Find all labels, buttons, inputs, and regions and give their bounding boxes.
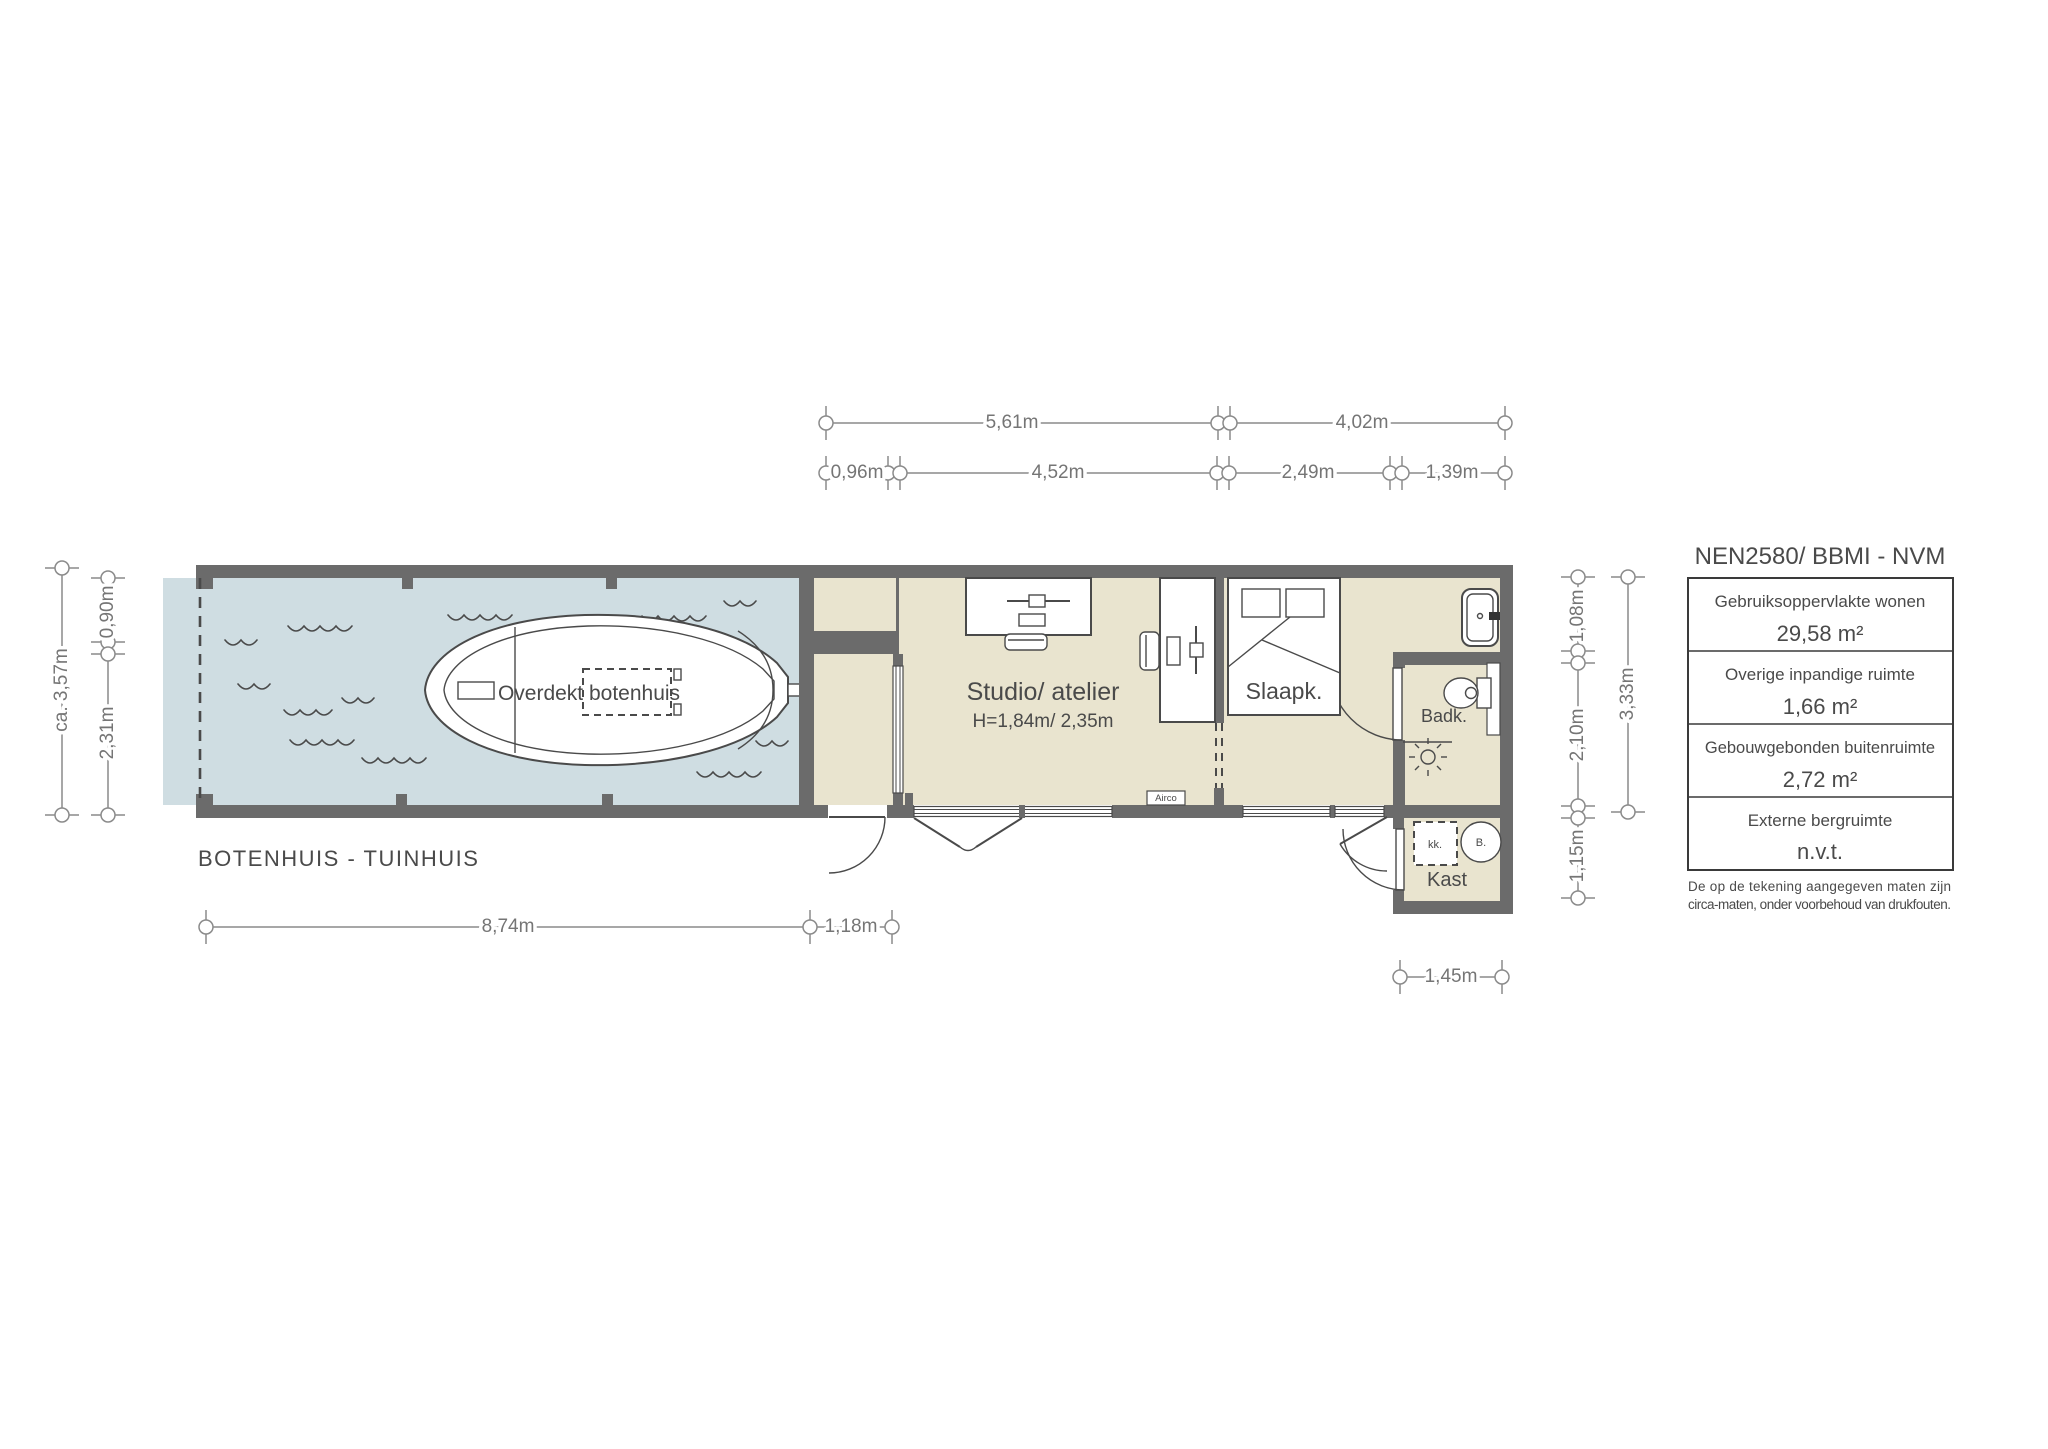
dim-circle [101, 808, 115, 822]
dim-circle [1223, 416, 1237, 430]
french-door-arc [960, 847, 976, 851]
boat-engine-box [458, 682, 494, 699]
legend-row-label: Gebouwgebonden buitenruimte [1705, 739, 1935, 757]
bedroom-label: Slaapk. [1246, 678, 1323, 704]
bedroom-window-2 [1335, 807, 1384, 817]
dim-circle [1621, 805, 1635, 819]
legend-title: NEN2580/ BBMI - NVM [1695, 543, 1946, 570]
wall-closet-right [1500, 818, 1513, 914]
dim-circle [101, 571, 115, 585]
monitor-2-stand [1190, 643, 1203, 657]
dim-circle [199, 920, 213, 934]
pillow [1286, 589, 1324, 617]
dim-label: 4,52m [1032, 462, 1085, 483]
dim-circle [1571, 570, 1585, 584]
dim-label: 5,61m [986, 412, 1039, 433]
dim-circle [1571, 811, 1585, 825]
wall-bathroom-left [1393, 740, 1405, 805]
keyboard-2 [1167, 637, 1180, 665]
legend-row-value: 1,66 m² [1783, 694, 1858, 719]
wall-bathroom-top [1393, 652, 1500, 665]
dim-label: 1,08m [1567, 590, 1588, 643]
dim-label: 0,90m [97, 586, 118, 639]
dim-label: 1,15m [1567, 830, 1588, 883]
bathroom-label: Badk. [1421, 706, 1467, 726]
wall-closet-bottom [1393, 901, 1513, 914]
legend-disclaimer-line1: De op de tekening aangegeven maten zijn [1688, 879, 1951, 894]
chair [1005, 634, 1047, 650]
studio-label: Studio/ atelier [967, 678, 1120, 706]
wall-top [196, 565, 1513, 578]
dim-label: 1,18m [825, 916, 878, 937]
legend: NEN2580/ BBMI - NVM Gebruiksoppervlakte … [1688, 543, 1953, 912]
wall-bottom-airco [1112, 805, 1243, 818]
faucet [1489, 612, 1500, 620]
legend-row-label: Gebruiksoppervlakte wonen [1715, 592, 1926, 611]
floorplan-canvas: 5,61m 4,02m 0,96m 4,52m 2,49m 1,39m ca. … [0, 0, 2048, 1449]
bedroom-window [1243, 807, 1330, 817]
airco-label: Airco [1155, 793, 1177, 804]
wall-vestibule-top [814, 631, 899, 654]
wall-right [1500, 565, 1513, 818]
toilet-bowl [1444, 678, 1478, 708]
pillar [396, 794, 407, 805]
plan-title: BOTENHUIS - TUINHUIS [198, 846, 479, 871]
studio-window-band [914, 807, 1112, 817]
dim-label: 1,39m [1426, 462, 1479, 483]
dim-label: 2,31m [97, 707, 118, 760]
closet-door-leaf [1396, 829, 1404, 890]
bedroom-door-arc [1340, 844, 1387, 871]
boat-hatch-hinge-bottom [674, 704, 681, 715]
boat-label: Overdekt botenhuis [498, 682, 680, 705]
wall-bottom-boathouse [196, 805, 810, 818]
dim-circle [1393, 970, 1407, 984]
dim-label: ca. 3,57m [51, 648, 72, 731]
dim-circle [819, 416, 833, 430]
fridge-label: kk. [1428, 839, 1442, 851]
dim-label: 2,49m [1282, 462, 1335, 483]
dim-circle [101, 647, 115, 661]
glass-partition [893, 666, 903, 793]
pillar [402, 578, 413, 589]
dim-circle [885, 920, 899, 934]
dim-label: 3,33m [1617, 668, 1638, 721]
bedroom-door-leaf [1340, 817, 1387, 844]
keyboard [1019, 614, 1045, 626]
bathroom-door-leaf [1393, 668, 1402, 740]
legend-row-value: n.v.t. [1797, 839, 1843, 864]
vestibule-door-arc [829, 817, 885, 873]
dim-circle [55, 808, 69, 822]
wall-bathroom-bottom [1400, 805, 1513, 818]
dim-circle [1222, 466, 1236, 480]
legend-row-value: 2,72 m² [1783, 767, 1858, 792]
wall-small-room [896, 578, 899, 631]
window-mullion [1330, 805, 1335, 818]
chair-2 [1140, 632, 1159, 670]
dim-circle [1571, 891, 1585, 905]
dim-circle [893, 466, 907, 480]
monitor-stand [1029, 595, 1045, 607]
legend-disclaimer-line2: circa-maten, onder voorbehoud van drukfo… [1688, 897, 1951, 912]
dim-label: 4,02m [1336, 412, 1389, 433]
dim-circle [803, 920, 817, 934]
boiler-label: B. [1476, 837, 1486, 849]
dim-label: 0,96m [831, 462, 884, 483]
french-door-leaf-left [914, 818, 960, 847]
legend-row-value: 29,58 m² [1777, 621, 1864, 646]
dim-circle [1498, 466, 1512, 480]
dim-circle [1495, 970, 1509, 984]
pillow [1242, 589, 1280, 617]
floorplan-svg: 5,61m 4,02m 0,96m 4,52m 2,49m 1,39m ca. … [0, 0, 2048, 1449]
boat-hatch-hinge-top [674, 669, 681, 680]
dim-circle [1621, 570, 1635, 584]
pillar [602, 794, 613, 805]
toilet-tank [1477, 678, 1491, 708]
legend-row-label: Externe bergruimte [1748, 811, 1893, 830]
dim-label: 8,74m [482, 916, 535, 937]
closet-label: Kast [1427, 869, 1467, 891]
pillar [606, 578, 617, 589]
dim-label: 1,45m [1425, 966, 1478, 987]
dim-circle [1571, 656, 1585, 670]
studio-height-label: H=1,84m/ 2,35m [973, 711, 1114, 732]
dim-circle [1395, 466, 1409, 480]
dim-circle [55, 561, 69, 575]
wall-boathouse-right [799, 578, 814, 805]
legend-row-label: Overige inpandige ruimte [1725, 665, 1915, 684]
dim-label: 2,10m [1567, 709, 1588, 762]
dim-circle [1498, 416, 1512, 430]
french-door-leaf-right [976, 818, 1022, 847]
